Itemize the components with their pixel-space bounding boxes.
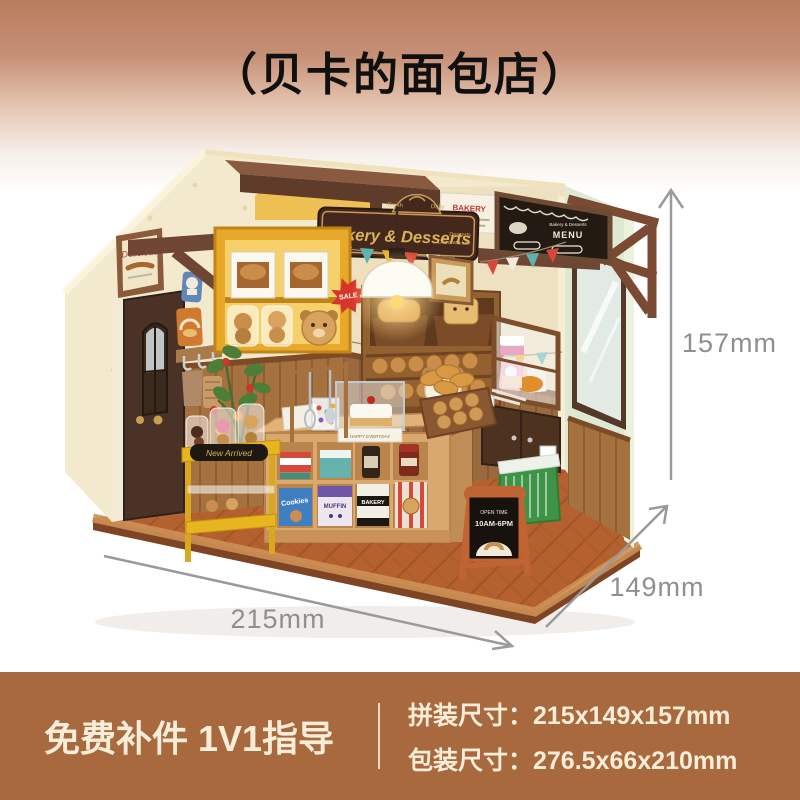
wall-card-croissant (176, 307, 203, 346)
assembly-size: 拼装尺寸：215x149x157mm (408, 696, 800, 732)
muffin-box: MUFFIN (318, 486, 352, 526)
svg-text:Bakery & Desserts: Bakery & Desserts (549, 222, 587, 227)
entrance-door (112, 291, 184, 522)
svg-text:MENU: MENU (553, 230, 584, 240)
striped-box (395, 482, 427, 528)
teddy-bread (300, 310, 338, 345)
cookies-box: Cookies (279, 488, 312, 526)
door-knob (136, 416, 144, 424)
product-photo: Delicious (0, 0, 800, 672)
package-size: 包装尺寸：276.5x66x210mm (408, 741, 800, 777)
height-arrow (659, 190, 683, 480)
size-specs: 拼装尺寸：215x149x157mm 包装尺寸：276.5x66x210mm (380, 696, 800, 777)
svg-text:OPEN TIME: OPEN TIME (480, 510, 508, 516)
yellow-bread-shelf: SALE (215, 228, 369, 352)
svg-text:MUFFIN: MUFFIN (324, 504, 347, 510)
svg-text:10AM-6PM: 10AM-6PM (475, 519, 513, 528)
svg-text:HAPPY EVERYDAY: HAPPY EVERYDAY (350, 434, 391, 439)
paper-bag (182, 370, 203, 406)
svg-text:Desserts: Desserts (449, 232, 471, 239)
svg-text:Daily: Daily (431, 204, 445, 210)
width-label: 215mm (230, 604, 325, 634)
svg-text:New Arrived: New Arrived (206, 448, 252, 458)
product-page: （贝卡的面包店） (0, 0, 800, 800)
svg-text:Decorate Life: Decorate Life (438, 239, 471, 246)
svg-text:Fresh: Fresh (387, 203, 403, 210)
depth-label: 149mm (609, 572, 704, 602)
service-text: 免费补件 1V1指导 (0, 710, 378, 762)
height-label: 157mm (682, 328, 777, 358)
info-banner: 免费补件 1V1指导 拼装尺寸：215x149x157mm 包装尺寸：276.5… (0, 672, 800, 800)
svg-text:BAKERY: BAKERY (361, 500, 384, 506)
bakery-box: BAKERY (357, 484, 389, 526)
